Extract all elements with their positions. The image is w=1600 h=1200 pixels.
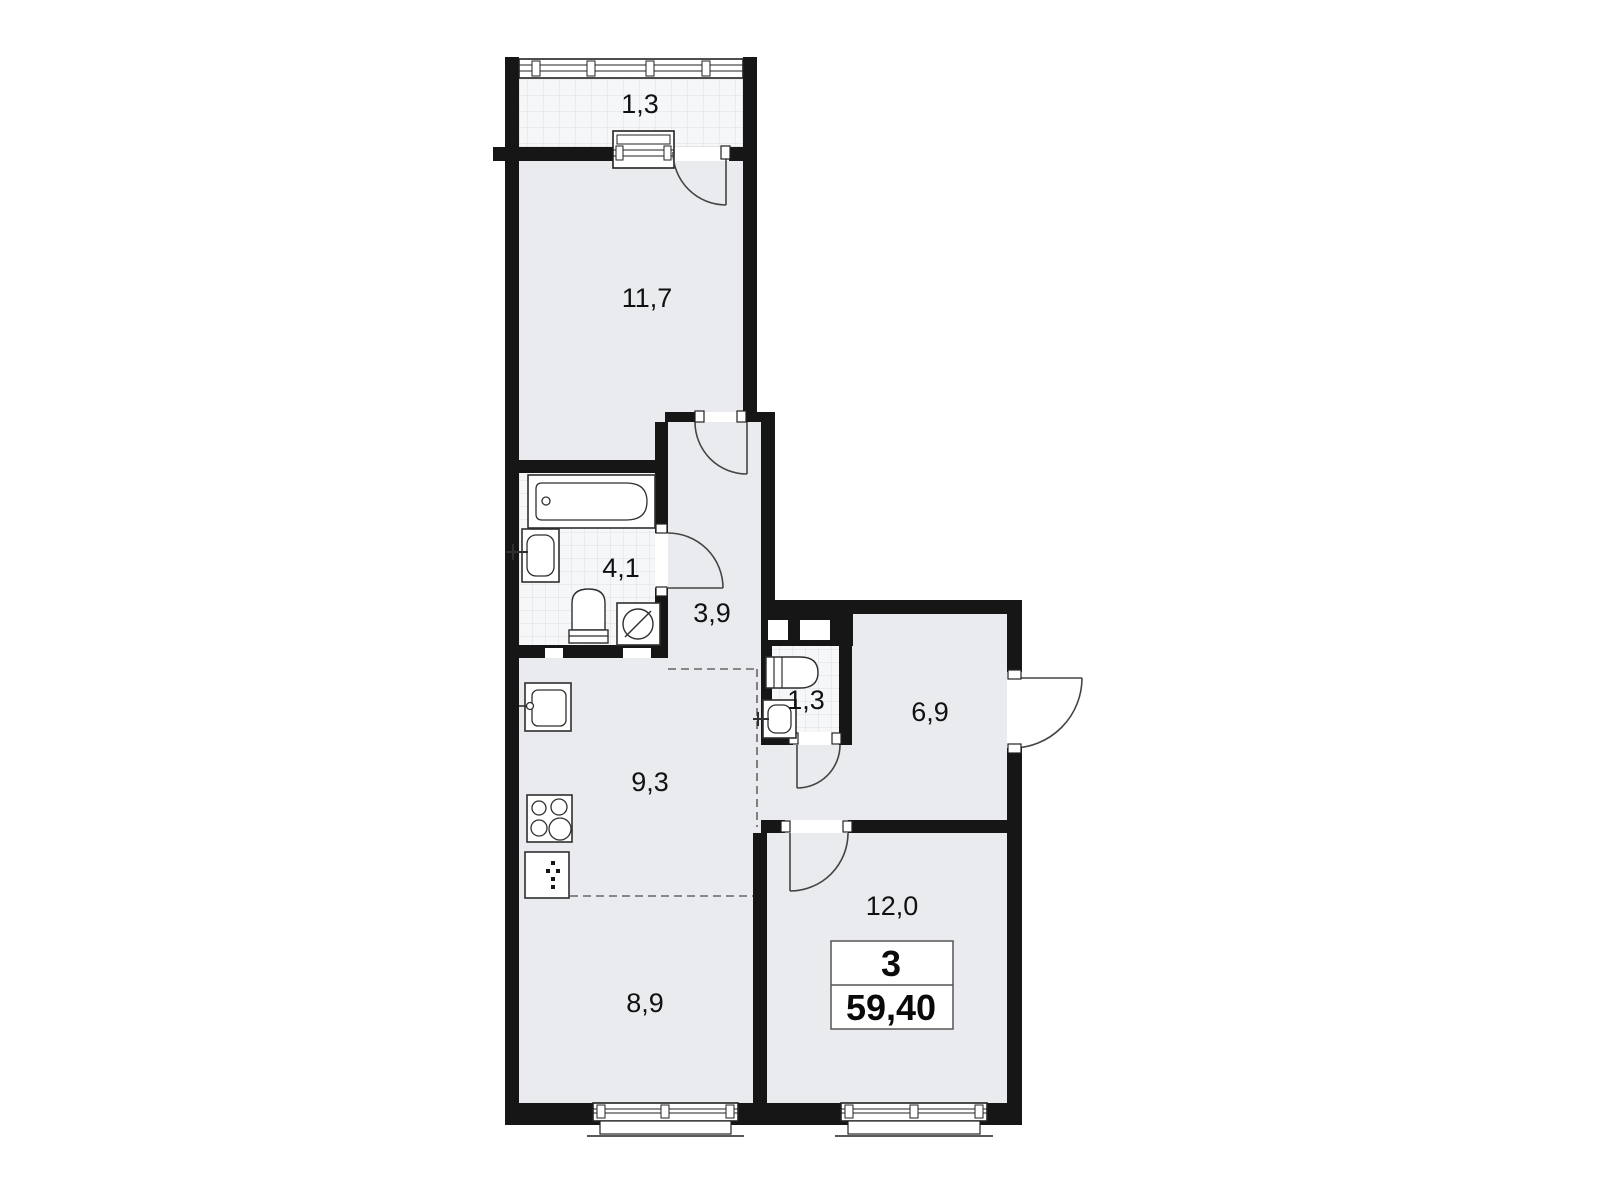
total-area: 59,40 xyxy=(846,987,936,1028)
wall-step xyxy=(743,412,775,422)
opening-entrance-door xyxy=(1007,672,1022,748)
window-room2 xyxy=(587,1103,744,1136)
wall-room2-living xyxy=(753,833,767,1103)
cooktop xyxy=(527,795,572,842)
duct-niche-2 xyxy=(623,648,651,658)
wall-wc-right xyxy=(839,614,852,745)
wall-bath-top xyxy=(519,460,659,473)
wall-entry-top xyxy=(761,600,1022,614)
label-entry: 6,9 xyxy=(911,697,949,727)
wall-living-top-b xyxy=(848,820,1022,833)
label-balcony: 1,3 xyxy=(621,89,659,119)
washing-machine xyxy=(617,603,660,645)
wc-duct-niche-1 xyxy=(768,620,788,640)
label-room2: 8,9 xyxy=(626,988,664,1018)
opening-bath-door xyxy=(655,533,668,588)
wc-duct-niche-2 xyxy=(800,620,830,640)
fridge xyxy=(525,852,569,898)
wall-right-outer-a xyxy=(1007,600,1022,672)
label-hallway: 3,9 xyxy=(693,598,731,628)
balcony-glazing xyxy=(519,59,743,78)
label-kitchen: 9,3 xyxy=(631,767,669,797)
wall-bedroom-right xyxy=(743,161,757,412)
wall-hall-right xyxy=(761,422,775,614)
wall-right-outer-b xyxy=(1007,748,1022,1103)
label-wc: 1,3 xyxy=(787,685,825,715)
wall-left-outer xyxy=(505,57,519,1125)
balcony-window xyxy=(613,131,674,168)
apartment-info-box: 3 59,40 xyxy=(831,941,953,1029)
bathtub xyxy=(528,475,655,528)
entrance-door xyxy=(1012,678,1082,748)
opening-living-door xyxy=(785,820,848,833)
label-living: 12,0 xyxy=(866,891,919,921)
wc-toilet xyxy=(766,657,818,688)
kitchen-sink xyxy=(519,683,571,731)
window-living xyxy=(835,1103,993,1136)
floor-plan-page: 1,3 11,7 4,1 3,9 1,3 6,9 9,3 12,0 8,9 3 … xyxy=(0,0,1600,1200)
rooms-count: 3 xyxy=(881,943,901,984)
wall-bath-right-a xyxy=(655,422,668,533)
wall-balcony-right xyxy=(743,57,757,161)
label-bathroom: 4,1 xyxy=(602,553,640,583)
label-bedroom: 11,7 xyxy=(622,283,673,313)
bath-toilet xyxy=(569,589,608,643)
floor-plan-svg: 1,3 11,7 4,1 3,9 1,3 6,9 9,3 12,0 8,9 3 … xyxy=(0,0,1600,1200)
duct-niche-1 xyxy=(545,648,563,658)
